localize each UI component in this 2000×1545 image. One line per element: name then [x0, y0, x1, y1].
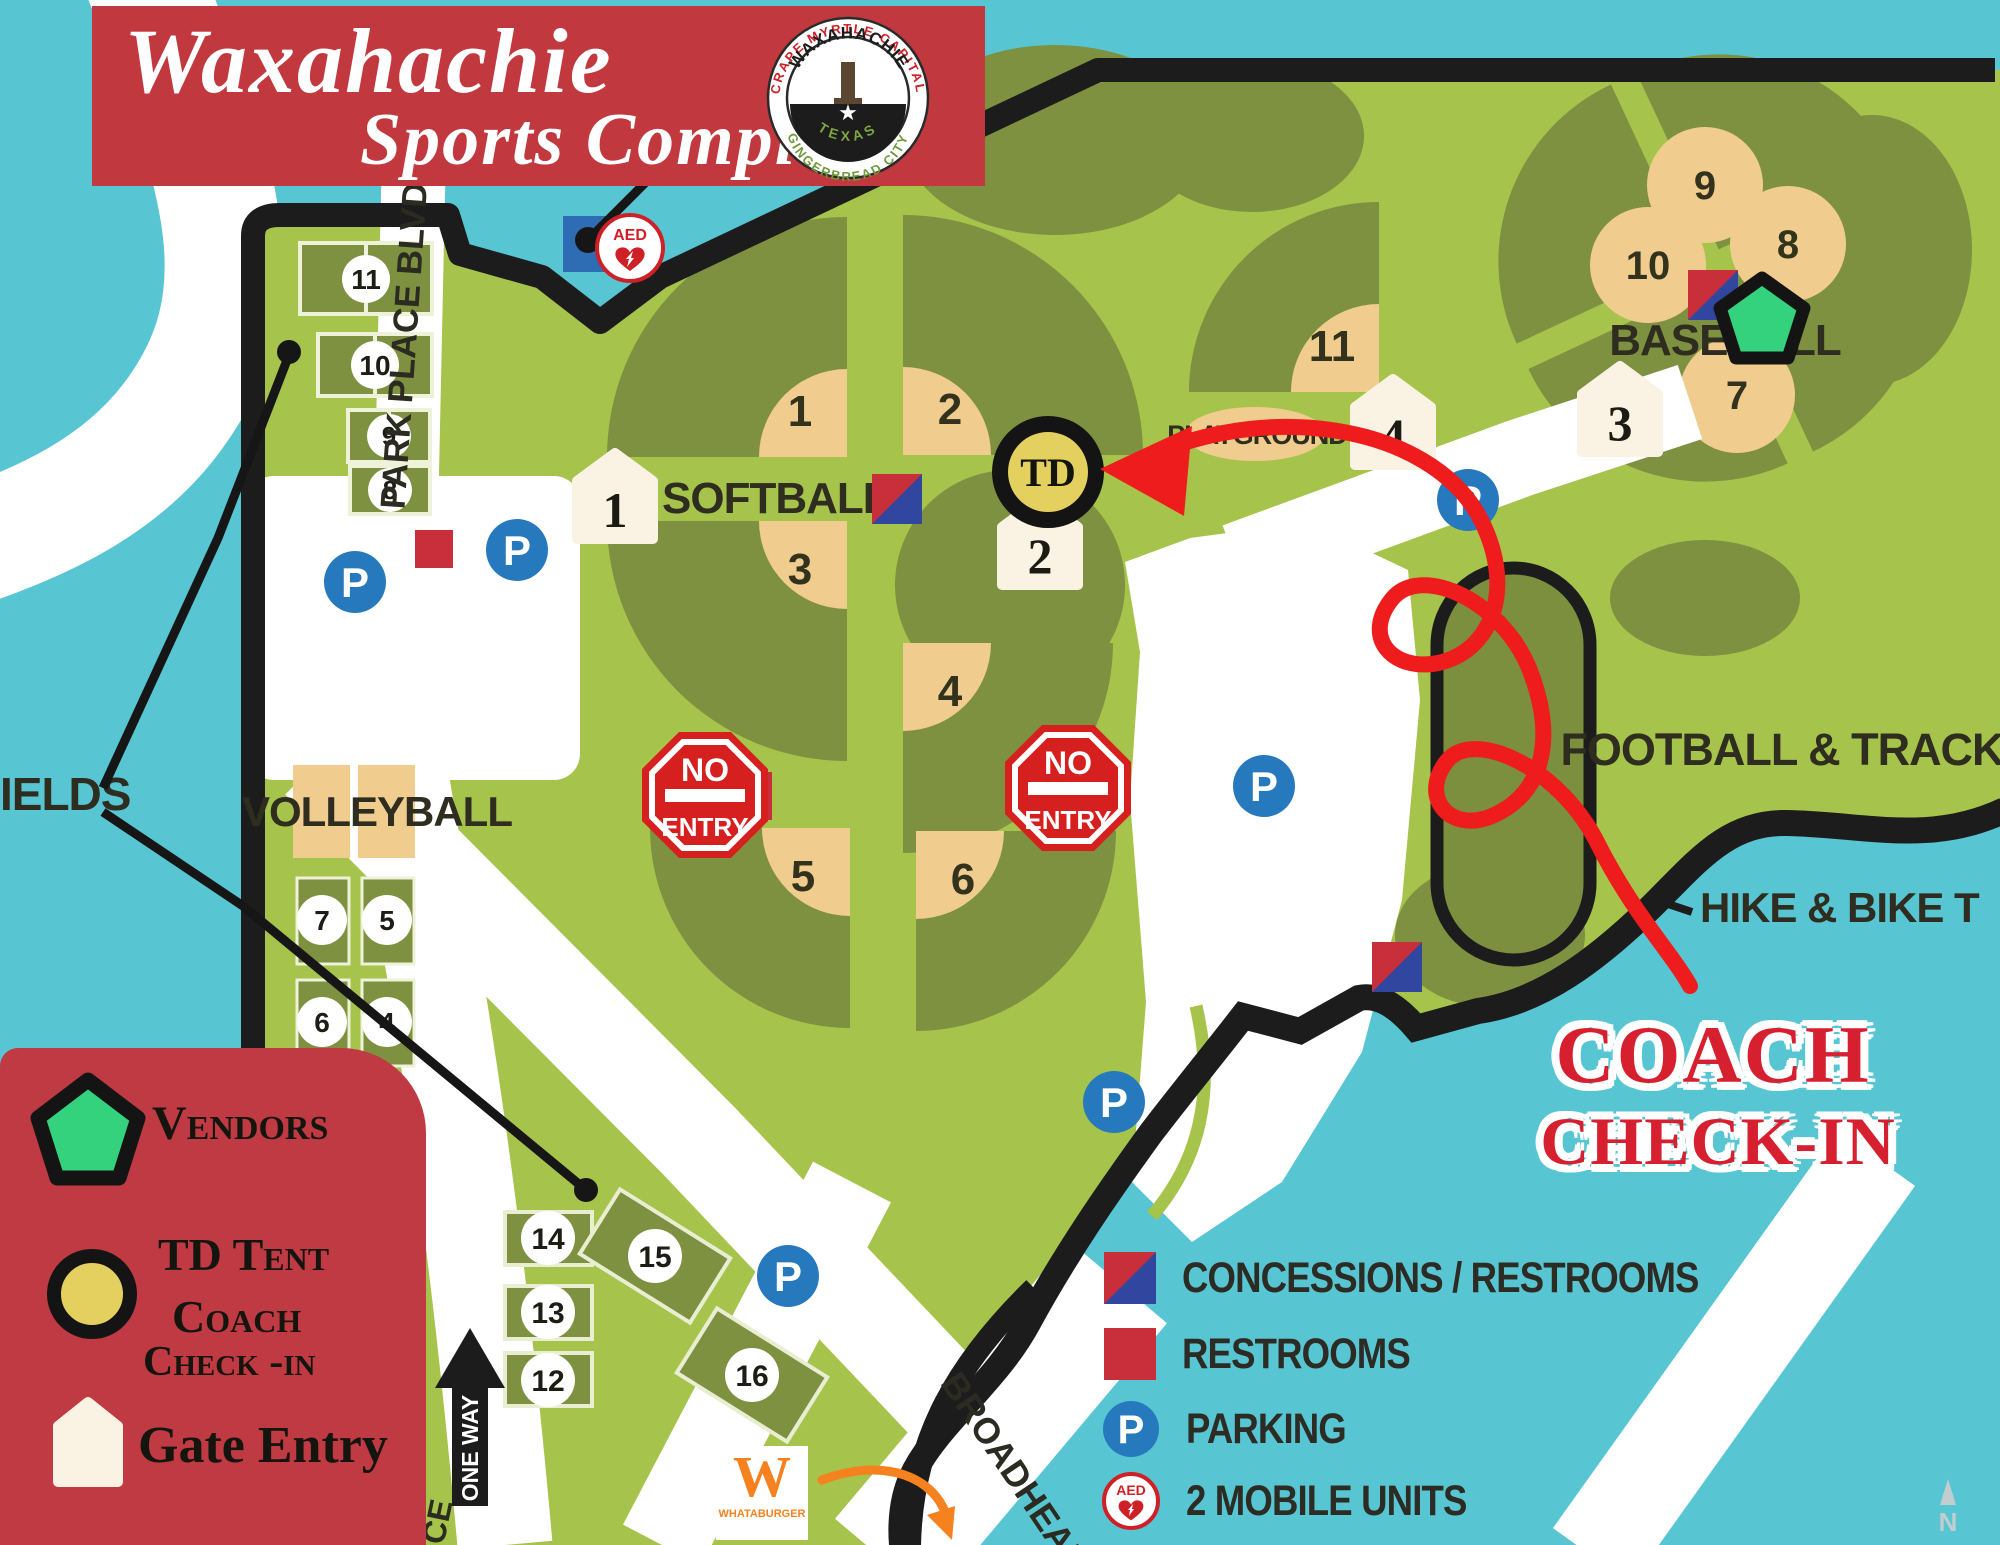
baseball-field-9: 9 [1694, 164, 1716, 208]
td-label: TD [1020, 450, 1076, 495]
concessions-legend-icon [1104, 1250, 1156, 1306]
parking-legend-icon: P [1102, 1400, 1160, 1458]
volleyball-label: VOLLEYBALL [242, 788, 512, 835]
pointer-dot-south [574, 1178, 598, 1202]
softball-field-6: 6 [951, 855, 975, 904]
city-seal: ★ CRAPE MYRTLE CAPITAL GINGERBREAD CITY … [764, 14, 932, 182]
gate-1: 1 [603, 482, 628, 538]
softball-field-11: 11 [1309, 322, 1356, 371]
softball-label: SOFTBALL [662, 474, 889, 523]
legend-mobile-units-label: 2 MOBILE UNITS [1186, 1477, 1467, 1526]
parking-marker: P [341, 559, 369, 606]
td-tent-icon [42, 1244, 142, 1344]
vendors-icon [28, 1072, 148, 1194]
courthouse-icon [841, 62, 855, 104]
gate-entry-icon [50, 1396, 126, 1488]
legend-restrooms-row: RESTROOMS [1104, 1326, 1450, 1382]
baseball-field-8: 8 [1777, 223, 1799, 267]
aed-legend-icon: AED [1102, 1472, 1160, 1530]
soccer-field-11: 11 [351, 264, 381, 295]
baseball-field-7: 7 [1726, 374, 1748, 418]
no-entry-sign: NO ENTRY [642, 732, 768, 858]
parking-marker: P [503, 527, 531, 574]
restrooms-legend-icon [1104, 1326, 1156, 1382]
legend-coach-label: Coach [172, 1290, 301, 1343]
soccer-field-15: 15 [638, 1241, 671, 1274]
seal-star: ★ [838, 100, 858, 125]
aed-icon: AED [597, 215, 663, 281]
legend-concessions-row: CONCESSIONS / RESTROOMS [1104, 1250, 1790, 1306]
baseball-field-10: 10 [1626, 244, 1671, 288]
no-entry-entry: ENTRY [1024, 805, 1111, 835]
whataburger-w: W [716, 1446, 808, 1508]
coach-checkin-title-line1: COACH [1513, 1008, 1913, 1102]
legend-aed-row: AED 2 MOBILE UNITS [1102, 1472, 1516, 1530]
coach-checkin-title-line2: CHECK-IN [1513, 1102, 1923, 1181]
legend-td-tent-label: TD Tent [158, 1228, 329, 1281]
title-banner: Waxahachie Sports Complex ★ CRAPE MYRTLE… [92, 6, 985, 186]
gate-3: 3 [1608, 395, 1633, 451]
softball-field-2: 2 [938, 385, 962, 434]
gate-2: 2 [1028, 528, 1053, 584]
parking-marker: P [774, 1253, 802, 1300]
pointer-dot-north [277, 340, 301, 364]
volleyball-court-5: 5 [379, 905, 395, 936]
football-track-label: FOOTBALL & TRACK [1560, 724, 2000, 775]
soccer-field-16: 16 [735, 1360, 768, 1393]
no-entry-no: NO [1044, 745, 1092, 781]
restroom-icon [415, 530, 453, 568]
td-tent-marker: TD [1000, 424, 1096, 520]
legend-gate-entry-label: Gate Entry [138, 1416, 388, 1475]
softball-field-3: 3 [788, 545, 812, 594]
map-stage: 1 2 3 4 5 6 11 9 8 10 7 [0, 0, 2000, 1545]
soccer-field-14: 14 [531, 1223, 565, 1256]
compass-n: N [1939, 1507, 1958, 1537]
no-entry-no: NO [681, 752, 729, 788]
soccer-field-13: 13 [531, 1297, 564, 1330]
aed-legend-label: AED [1116, 1482, 1146, 1498]
parking-marker: P [1100, 1079, 1128, 1126]
no-entry-sign: NO ENTRY [1005, 725, 1131, 851]
no-entry-entry: ENTRY [661, 812, 748, 842]
legend-concessions-label: CONCESSIONS / RESTROOMS [1182, 1254, 1699, 1303]
one-way-label: ONE WAY [457, 1395, 483, 1502]
volleyball-court-6: 6 [314, 1007, 330, 1038]
legend-parking-label: PARKING [1186, 1405, 1346, 1454]
parking-legend-p: P [1118, 1408, 1145, 1452]
legend-vendors-label: Vendors [152, 1096, 328, 1151]
aed-label: AED [613, 227, 647, 244]
hike-bike-label: HIKE & BIKE T [1700, 884, 1980, 931]
parking-marker: P [1250, 763, 1278, 810]
softball-field-5: 5 [791, 852, 815, 901]
legend-parking-row: P PARKING [1102, 1400, 1374, 1458]
softball-field-4: 4 [938, 667, 963, 716]
soccer-field-12: 12 [531, 1365, 564, 1398]
volleyball-court-7: 7 [314, 905, 330, 936]
softball-field-1: 1 [788, 387, 812, 436]
whataburger-logo: W WHATABURGER [716, 1446, 808, 1540]
whataburger-name: WHATABURGER [716, 1508, 808, 1520]
legend-restrooms-label: RESTROOMS [1182, 1330, 1410, 1379]
legend-checkin-label: Check -in [143, 1338, 315, 1386]
